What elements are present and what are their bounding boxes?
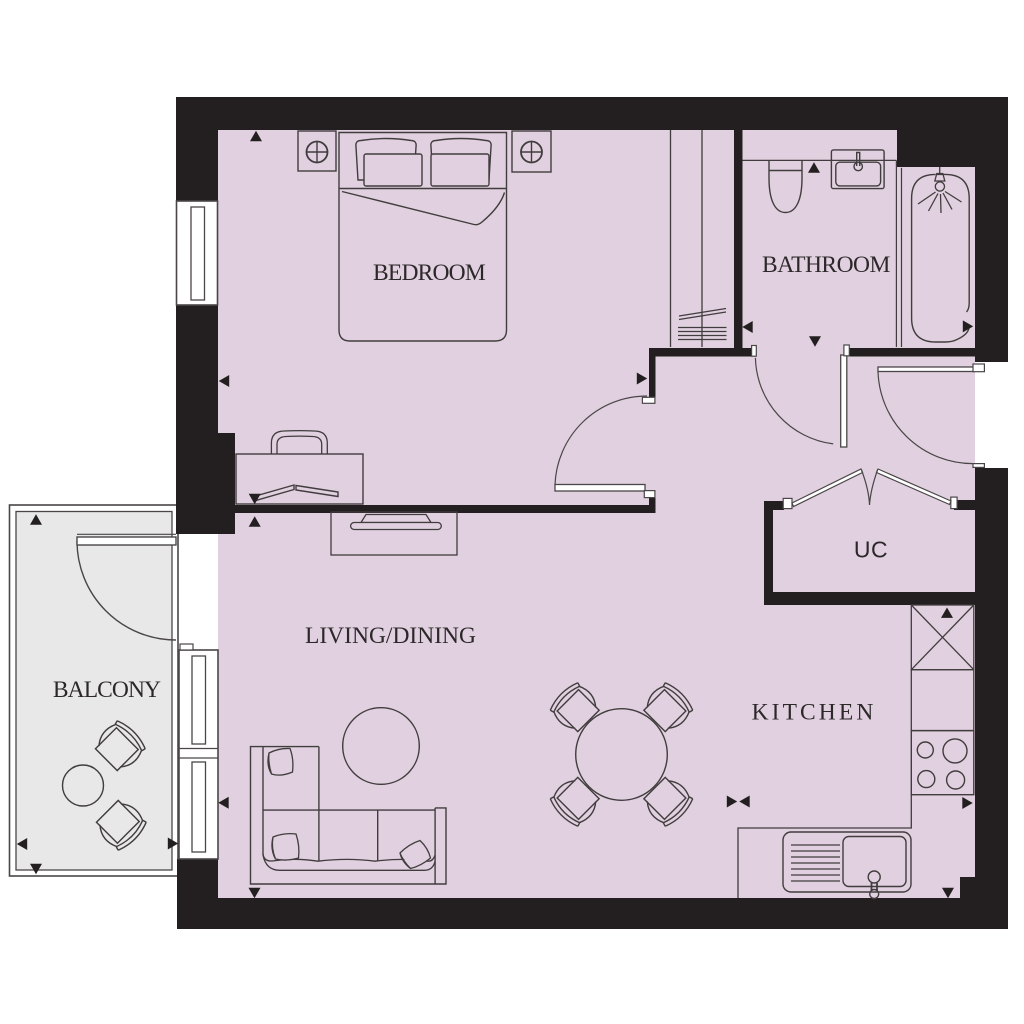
svg-text:BEDROOM: BEDROOM [373, 260, 486, 286]
svg-text:KITCHEN: KITCHEN [752, 700, 877, 726]
svg-text:UC: UC [854, 537, 888, 563]
svg-text:BATHROOM: BATHROOM [762, 252, 890, 278]
svg-text:LIVING/DINING: LIVING/DINING [305, 623, 476, 649]
svg-text:BALCONY: BALCONY [53, 677, 161, 703]
